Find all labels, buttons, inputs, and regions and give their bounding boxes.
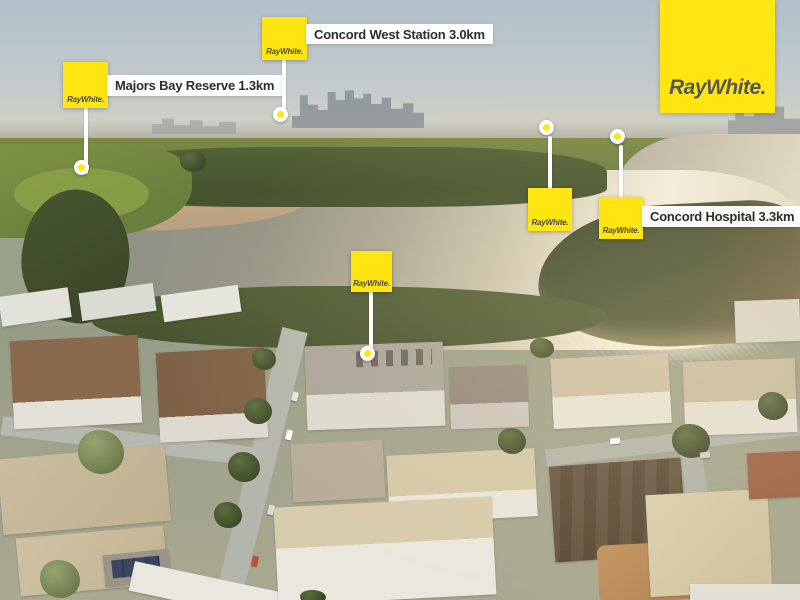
location-dot	[74, 160, 89, 175]
building	[291, 440, 386, 503]
raywhite-pin: RayWhite.	[262, 17, 307, 60]
tree	[498, 428, 526, 454]
car	[700, 451, 711, 458]
building	[734, 299, 800, 343]
pin-brand-text: RayWhite.	[266, 47, 303, 56]
tree	[40, 560, 80, 598]
distance-label: Concord Hospital 3.3km	[642, 206, 800, 227]
tree	[300, 590, 326, 600]
pin-brand-text: RayWhite.	[532, 218, 569, 227]
location-dot	[610, 129, 625, 144]
tree	[180, 150, 206, 172]
raywhite-logo: RayWhite.	[660, 0, 775, 113]
marker-stem	[619, 145, 623, 201]
building	[0, 287, 72, 326]
pin-brand-text: RayWhite.	[353, 279, 390, 288]
tree	[228, 452, 260, 482]
car	[610, 437, 621, 444]
tree	[530, 338, 554, 358]
tree	[252, 348, 276, 370]
distance-label: Majors Bay Reserve 1.3km	[107, 75, 282, 96]
building	[449, 365, 529, 430]
pin-brand-text: RayWhite.	[603, 226, 640, 235]
aerial-photo: RayWhite. Majors Bay Reserve 1.3km RayWh…	[0, 0, 800, 600]
marker-stem	[369, 288, 373, 350]
raywhite-logo-text: RayWhite.	[669, 76, 766, 100]
raywhite-pin: RayWhite.	[351, 251, 392, 292]
building-brown-roof	[10, 335, 142, 430]
building-waterfront	[550, 353, 672, 429]
tree	[758, 392, 788, 420]
raywhite-pin: RayWhite.	[599, 197, 643, 239]
location-dot	[360, 346, 375, 361]
raywhite-pin: RayWhite.	[528, 188, 572, 231]
distance-label: Concord West Station 3.0km	[306, 24, 493, 44]
warehouse-cream-roof	[645, 489, 772, 597]
location-dot	[539, 120, 554, 135]
tree	[214, 502, 242, 528]
tree	[244, 398, 272, 424]
building-apartment	[274, 496, 497, 600]
pin-brand-text: RayWhite.	[67, 95, 104, 104]
marker-stem	[548, 136, 552, 192]
building-brick	[747, 451, 800, 500]
building	[690, 584, 800, 600]
tree	[78, 430, 124, 474]
raywhite-pin: RayWhite.	[63, 62, 108, 108]
location-dot	[273, 107, 288, 122]
